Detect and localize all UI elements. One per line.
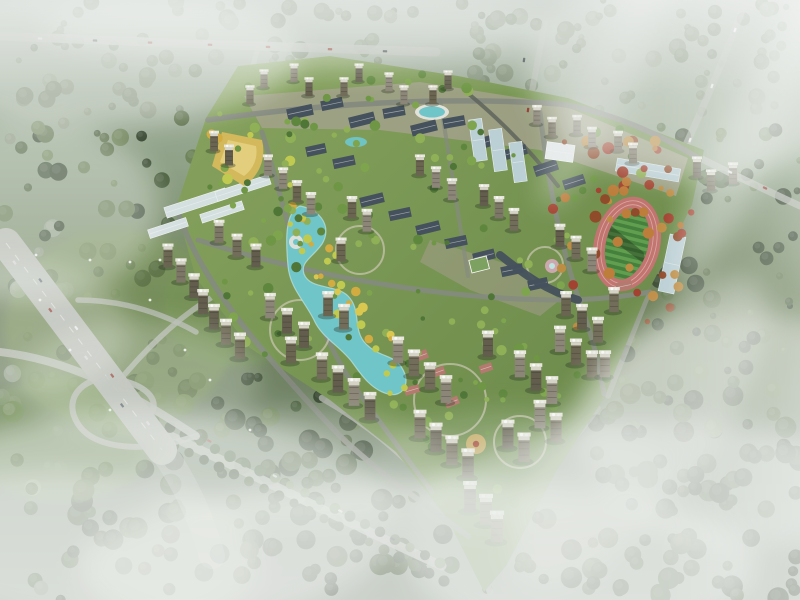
aerial-rendering <box>0 0 800 600</box>
atmosphere-veil <box>0 0 800 600</box>
scene-svg <box>0 0 800 600</box>
